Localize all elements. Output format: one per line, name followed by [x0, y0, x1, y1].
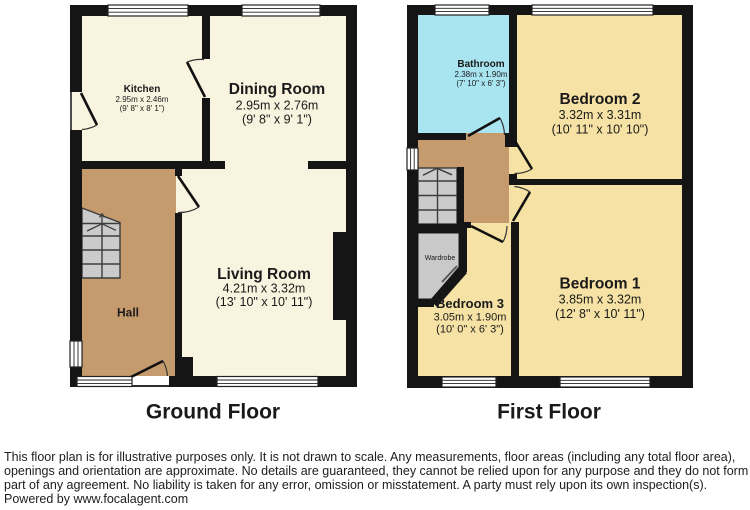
svg-text:(9' 8" x 9' 1"): (9' 8" x 9' 1")	[242, 113, 312, 127]
svg-text:3.85m x 3.32m: 3.85m x 3.32m	[559, 293, 642, 307]
svg-text:(10' 11" x 10' 10"): (10' 11" x 10' 10")	[552, 123, 649, 137]
svg-text:Bedroom 3: Bedroom 3	[436, 296, 504, 311]
svg-text:Kitchen: Kitchen	[124, 84, 161, 95]
svg-text:Bedroom 2: Bedroom 2	[560, 91, 641, 108]
svg-text:4.21m x 3.32m: 4.21m x 3.32m	[223, 282, 306, 296]
svg-text:(10' 0" x 6' 3"): (10' 0" x 6' 3")	[436, 324, 504, 336]
svg-text:2.95m x 2.46m: 2.95m x 2.46m	[116, 95, 169, 104]
svg-text:Hall: Hall	[117, 306, 139, 320]
svg-text:2.38m x 1.90m: 2.38m x 1.90m	[455, 70, 508, 79]
svg-text:Living Room: Living Room	[217, 266, 311, 283]
svg-text:Bedroom 1: Bedroom 1	[560, 276, 641, 293]
svg-text:First Floor: First Floor	[497, 401, 601, 424]
svg-text:Dining Room: Dining Room	[229, 81, 325, 98]
svg-text:2.95m x 2.76m: 2.95m x 2.76m	[236, 99, 319, 113]
svg-text:(12' 8" x 10' 11"): (12' 8" x 10' 11")	[555, 307, 645, 321]
svg-text:Ground Floor: Ground Floor	[146, 401, 280, 424]
svg-text:(13' 10" x 10' 11"): (13' 10" x 10' 11")	[216, 295, 313, 309]
svg-text:Bathroom: Bathroom	[457, 59, 504, 70]
svg-text:3.05m x 1.90m: 3.05m x 1.90m	[434, 312, 507, 324]
svg-text:(9' 8" x 8' 1"): (9' 8" x 8' 1")	[120, 104, 165, 113]
svg-text:3.32m x 3.31m: 3.32m x 3.31m	[559, 108, 642, 122]
svg-text:(7' 10" x 6' 3"): (7' 10" x 6' 3")	[456, 79, 506, 88]
svg-text:Wardrobe: Wardrobe	[425, 255, 456, 262]
